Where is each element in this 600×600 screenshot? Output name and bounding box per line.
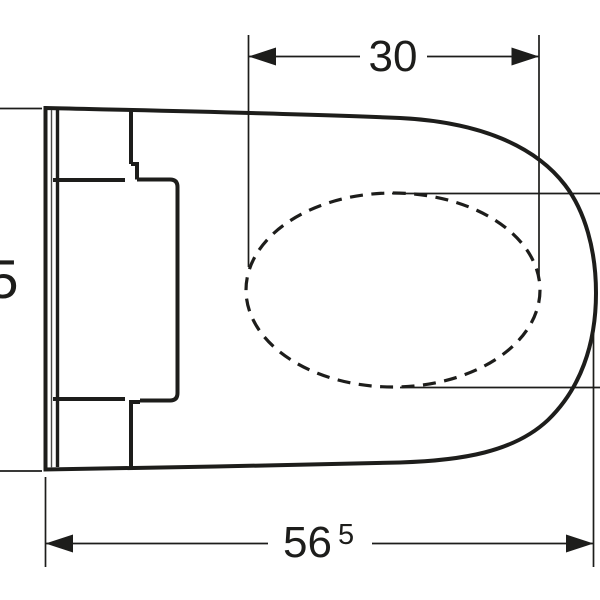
dim-565-label-superscript: 5 bbox=[338, 519, 354, 551]
dim-565-arrow-left bbox=[46, 535, 74, 553]
technical-drawing-canvas: 30 56 5 5 bbox=[0, 0, 600, 600]
toilet-plan-drawing: 30 56 5 5 bbox=[0, 0, 600, 600]
dim-30-label: 30 bbox=[369, 32, 418, 81]
dim-left-partial-label: 5 bbox=[0, 248, 19, 310]
dim-565-label-main: 56 bbox=[283, 518, 332, 567]
dim-565-arrow-right bbox=[566, 535, 594, 553]
toilet-body-outline bbox=[46, 108, 597, 470]
dim-30-arrow-left bbox=[249, 48, 277, 66]
dim-30-arrow-right bbox=[512, 48, 540, 66]
